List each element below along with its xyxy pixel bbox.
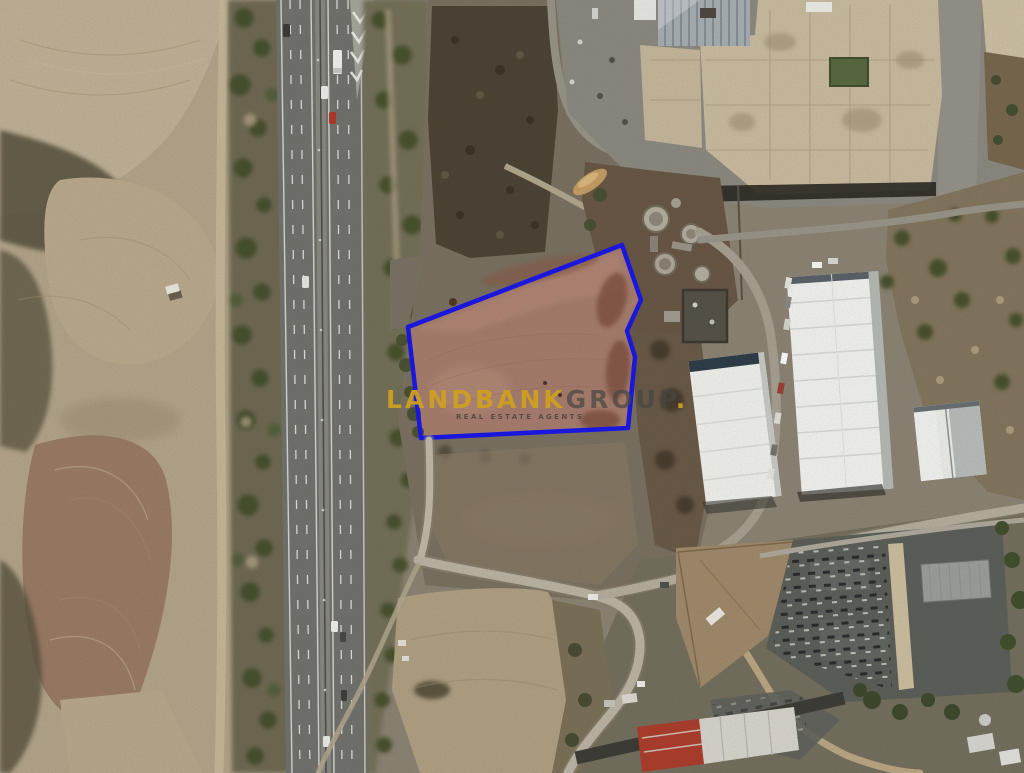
aerial-photo[interactable]: LANDBANKGROUP. REAL ESTATE AGENTS: [0, 0, 1024, 773]
photo-grain: [0, 0, 1024, 773]
satellite-imagery: [0, 0, 1024, 773]
